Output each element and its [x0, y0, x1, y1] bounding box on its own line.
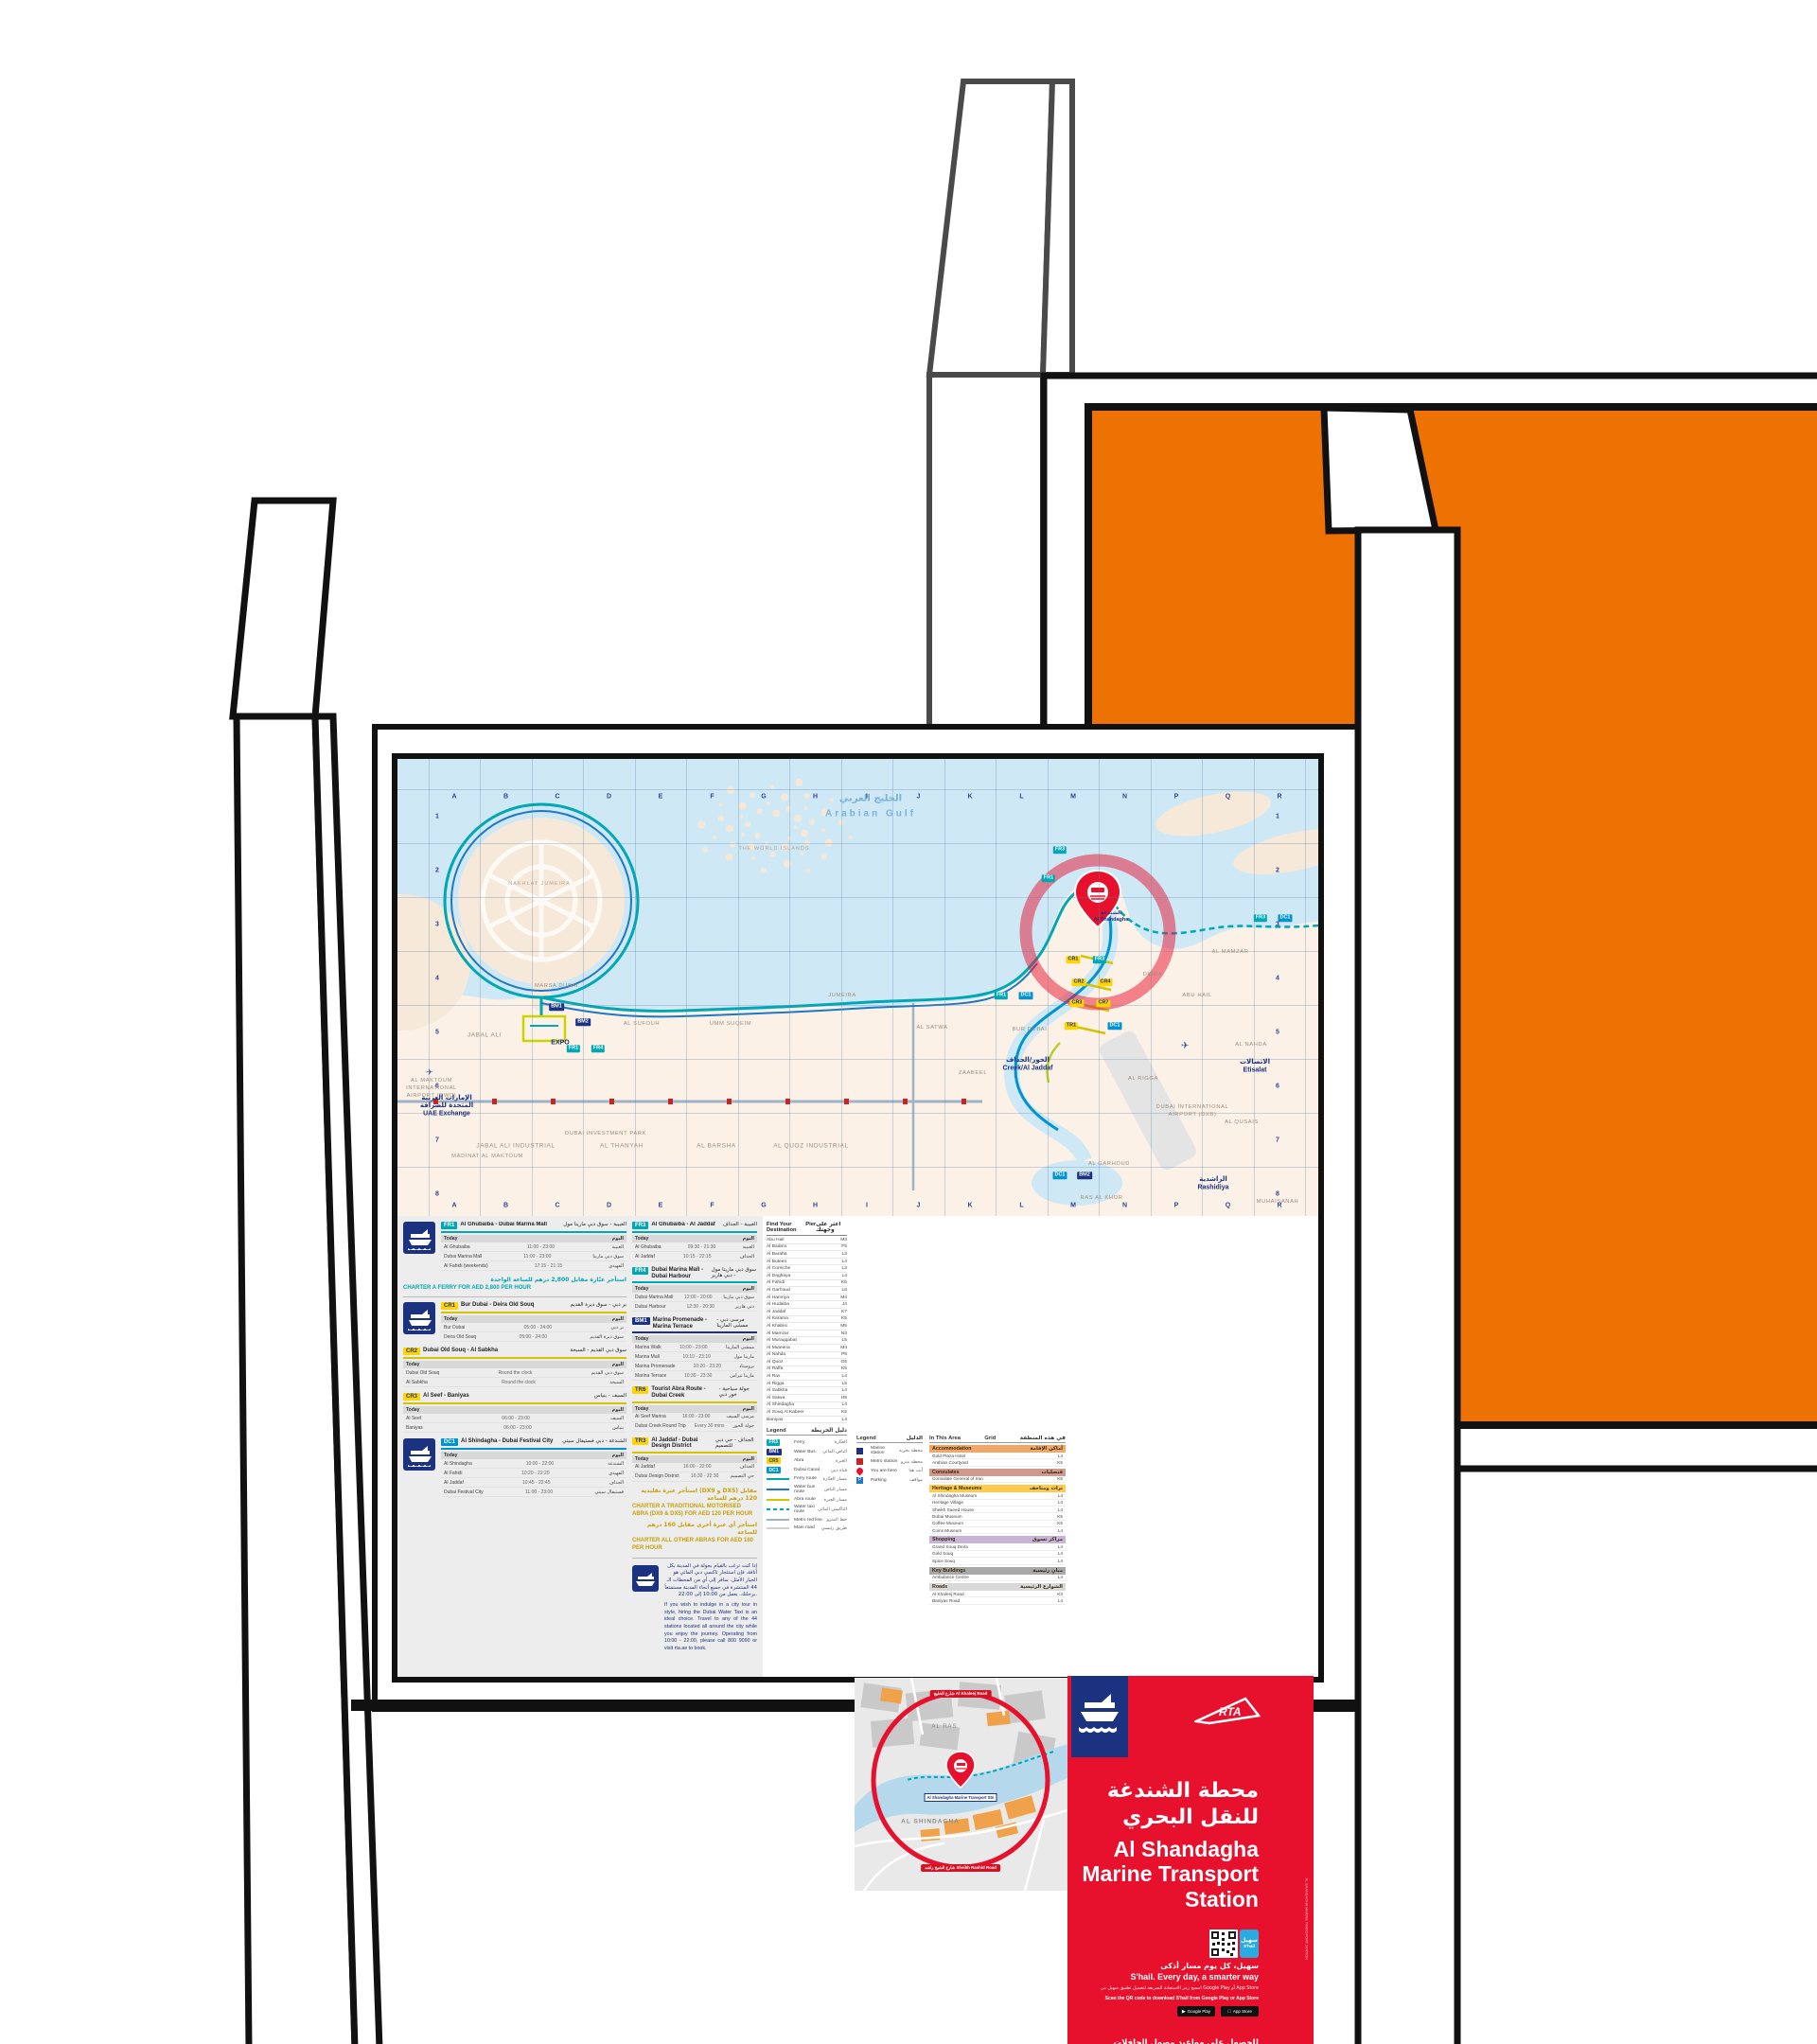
area-row: Coins MuseumL4 [929, 1527, 1066, 1534]
timetable-row: Al Jaddaf16:00 - 22:00الجداف [632, 1463, 757, 1472]
detail-banner-bottom: شارع الشيخ راشد Sheikh Rashid Road [921, 1864, 1000, 1872]
route-title-ar: الغبيبة - الجداف [723, 1222, 757, 1228]
stop-times: 10:20 - 22:20 [521, 1471, 549, 1476]
destination-pier: F5 [841, 1244, 847, 1249]
route-badge: TR6 [632, 1386, 648, 1394]
mini-legend-icon: P [856, 1477, 868, 1484]
legend-label-ar: العبّارة [835, 1439, 847, 1445]
legend-label-en: Abra [794, 1458, 833, 1463]
route-title-en: Al Seef - Baniyas [423, 1393, 469, 1400]
stop-en: Al Fahidi (weekends) [444, 1263, 488, 1269]
stop-ar: سوق دبي القديم [591, 1370, 624, 1376]
area-section: Roadsالشوارع الرئيسيةAl Khaleej RoadK3Ba… [929, 1583, 1066, 1605]
today-ar: اليوم [612, 1236, 624, 1242]
destination-pier: L4 [842, 1402, 847, 1407]
destination-name: Al Nahda [767, 1352, 785, 1357]
destination-row: Al MuraqqabatL5 [767, 1337, 847, 1345]
destination-header: Find Your Destination Pier اعثر على وجهت… [767, 1222, 847, 1236]
timetable-row: Deira Old Souq05:00 - 24:00سوق ديرة القد… [441, 1332, 626, 1342]
stop-en: Al Seef Marina [635, 1414, 666, 1419]
today-bar: Todayاليوم [632, 1405, 757, 1413]
destination-name: Abu Hail [767, 1238, 785, 1242]
destination-row: Al RaffaK5 [767, 1366, 847, 1374]
area-section-name: Consulates [932, 1470, 960, 1475]
area-section: Heritage & Museumsتراث ومتاحفAl Shindagh… [929, 1485, 1066, 1534]
timetable-row: Marina Terrace10:30 - 23:30مارينا تيراس [632, 1371, 757, 1381]
timetable-head: BM1Marina Promenade - Marina Terraceمرسى… [632, 1317, 757, 1330]
timetable-block: DC1Al Shindagha - Dubai Festival Cityالش… [403, 1438, 626, 1497]
area-section-header: Accommodationأماكن الإقامة [929, 1445, 1066, 1453]
timetable-head: CR1Bur Dubai - Deira Old Souqبر دبي - سو… [441, 1302, 626, 1310]
legend-label-en: Dubai Canal [794, 1468, 828, 1472]
timetable-head: FR3Al Ghubaiba - Al Jaddafالغبيبة - الجد… [632, 1222, 757, 1229]
timetable-block: TR6Tourist Abra Route - Dubai Creekجولة … [632, 1386, 757, 1431]
route-title-en: Tourist Abra Route - Dubai Creek [651, 1386, 718, 1399]
route-title-ar: مرسى دبي - ممشى المارينا [716, 1317, 757, 1330]
destination-row: Al HudaibaJ4 [767, 1301, 847, 1309]
route-title-en: Dubai Old Souq - Al Sabkha [423, 1348, 498, 1354]
detail-label-alras: AL RAS [931, 1724, 957, 1730]
route-badge: CR3 [403, 1393, 420, 1401]
route-rule [403, 1357, 626, 1359]
timetable-row: Al SabkhaRound the clockالسبخة [403, 1378, 626, 1387]
route-title-en: Marina Promenade - Marina Terrace [653, 1317, 717, 1330]
route-badge: FR3 [632, 1222, 648, 1229]
destination-name: Al Mamzar [767, 1331, 788, 1336]
stop-en: Dubai Marina Mall [635, 1295, 673, 1300]
area-section-header: Consulatesقنصليات [929, 1469, 1066, 1476]
poster-information-band: FR1Al Ghubaiba - Dubai Marina Mallالغبيب… [397, 1216, 1318, 1677]
timetable-head: TR3Al Jaddaf - Dubai Design Districtالجد… [632, 1437, 757, 1450]
timetable-block: CR1Bur Dubai - Deira Old Souqبر دبي - سو… [403, 1302, 626, 1342]
today-ar: اليوم [612, 1407, 624, 1413]
route-rule [632, 1231, 757, 1233]
mini-legend-icon [856, 1448, 868, 1454]
stop-en: Marina Promenade [635, 1364, 676, 1369]
stop-ar: الفهيدي [609, 1471, 624, 1476]
station-title-arabic: محطة الشندغة للنقل البحري [1107, 1778, 1259, 1830]
legend-label-en: Water taxi route [794, 1505, 815, 1514]
stop-ar: دبي هاربر [735, 1304, 754, 1310]
destination-row: BaniyasL4 [767, 1417, 847, 1424]
mini-legend-en: Metro station [871, 1459, 898, 1464]
mini-legend-title-ar: الدليل [907, 1436, 923, 1441]
svg-text:RTA: RTA [1219, 1705, 1242, 1718]
legend-line [767, 1508, 789, 1510]
today-bar: Todayاليوم [403, 1406, 626, 1414]
route-badge: FR4 [632, 1267, 648, 1275]
today-en: Today [444, 1236, 457, 1242]
area-section-name: Heritage & Museums [932, 1486, 981, 1491]
stop-times: Round the clock [499, 1370, 533, 1376]
today-ar: اليوم [612, 1453, 624, 1458]
area-row: Al Khaleej RoadK3 [929, 1591, 1066, 1597]
destination-name: Al Daghaya [767, 1274, 790, 1278]
stop-times: 16:00 - 22:00 [683, 1464, 711, 1470]
ras-al-khor-lagoon [1032, 1160, 1122, 1206]
legend-swatch: CR5 [767, 1457, 791, 1464]
timetable-head: FR4Dubai Marina Mall - Dubai Harbourسوق … [632, 1267, 757, 1279]
area-row: Sheikh Saeed HouseL4 [929, 1507, 1066, 1513]
area-grid-ref: L4 [1058, 1493, 1063, 1498]
scan-note-ar: امسح رمز الاستجابة السريعة لتحميل تطبيق … [1084, 1986, 1259, 1991]
stop-ar: الجداف [740, 1464, 754, 1470]
area-section-ar: مبانٍ رئيسية [1032, 1568, 1063, 1574]
mini-legend-row: You are hereأنت هنا [856, 1467, 923, 1476]
timetable-row: Dubai Festival City11:00 - 23:00فستيفال … [441, 1488, 626, 1497]
destination-name: Al Raffa [767, 1366, 783, 1371]
destination-row: Al ShindaghaL4 [767, 1402, 847, 1410]
detail-map-graphics [855, 1678, 1067, 1891]
stop-times: 16:00 - 23:00 [682, 1414, 710, 1419]
legend-row: Main roadطريق رئيسي [767, 1524, 847, 1532]
route-title-ar: سوق دبي القديم - السبخة [570, 1348, 626, 1354]
legend-line [767, 1499, 789, 1501]
route-title-en: Al Shindagha - Dubai Festival City [461, 1438, 553, 1445]
stop-times: 17:15 - 21:15 [535, 1263, 562, 1269]
area-place: Al Shindagha Museum [932, 1493, 977, 1498]
destination-name: Baniyas [767, 1418, 783, 1422]
stop-ar: الجداف [740, 1254, 754, 1260]
legend-label-en: Abra route [794, 1497, 821, 1502]
destination-name: Al Satwa [767, 1396, 785, 1401]
destination-pier: L4 [842, 1374, 847, 1379]
charter-note-ar: استأجر عبّارة مقابل 2,800 درهم للساعة ال… [403, 1277, 626, 1284]
destination-pier: M3 [840, 1238, 847, 1242]
shail-qr-code [1209, 1929, 1238, 1958]
mini-legend-ar: مواقف [909, 1477, 923, 1483]
destination-row: Al MamzarN3 [767, 1330, 847, 1338]
area-grid-ref: L4 [1058, 1544, 1063, 1549]
destination-pier: K7 [841, 1310, 847, 1314]
legend-row: Metro red lineخط المترو [767, 1516, 847, 1524]
timetable-block: CR2Dubai Old Souq - Al Sabkhaسوق دبي الق… [403, 1348, 626, 1387]
destination-pier: K5 [841, 1316, 847, 1321]
destination-name: Al Corniche [767, 1266, 790, 1271]
route-title-en: Al Ghubaiba - Dubai Marina Mall [460, 1222, 547, 1228]
today-bar: Todayاليوم [441, 1315, 626, 1323]
stop-ar: بر دبي [610, 1325, 624, 1330]
route-rule [632, 1331, 757, 1333]
destination-row: Al DaghayaL4 [767, 1273, 847, 1280]
destination-row: Al SabkhaL4 [767, 1387, 847, 1395]
signboard-scene: ✈ ✈ [0, 0, 1817, 2044]
destination-pier: L4 [842, 1260, 847, 1264]
destination-row: Al Bada'aF5 [767, 1244, 847, 1252]
destination-name: Al Baraha [767, 1252, 786, 1257]
stop-ar: فستيفال سيتي [594, 1489, 624, 1495]
legend-swatch: FR3 [767, 1439, 791, 1446]
destination-name: Al Hudaiba [767, 1302, 789, 1307]
legend-row: Ferry routeمسار العبّارة [767, 1475, 847, 1484]
route-mode-icon [403, 1222, 435, 1254]
today-bar: Todayاليوم [632, 1455, 757, 1463]
area-grid-ref: K5 [1057, 1476, 1063, 1481]
stop-en: Deira Old Souq [444, 1334, 476, 1340]
legend-swatch [767, 1489, 791, 1490]
route-title-ar: الجداف - حي دبي للتصميم [715, 1437, 757, 1450]
timetable-block: FR1Al Ghubaiba - Dubai Marina Mallالغبيب… [403, 1222, 626, 1271]
destination-pier: N3 [841, 1331, 847, 1336]
today-bar: Todayاليوم [632, 1285, 757, 1293]
destination-row: Al ButeenL4 [767, 1259, 847, 1266]
area-place: Coffee Museum [932, 1521, 963, 1525]
timetable-head: CR3Al Seef - Baniyasالسيف - بنياس [403, 1393, 626, 1401]
stop-en: Dubai Old Souq [406, 1370, 439, 1376]
area-section-header: Key Buildingsمبانٍ رئيسية [929, 1567, 1066, 1575]
route-title-ar: الغبيبة - سوق دبي مارينا مول [563, 1222, 626, 1228]
timetable-head: FR1Al Ghubaiba - Dubai Marina Mallالغبيب… [441, 1222, 626, 1229]
legend-line [767, 1527, 789, 1529]
route-title-en: Bur Dubai - Deira Old Souq [461, 1302, 534, 1309]
route-rule [441, 1312, 626, 1313]
legend-line [767, 1519, 789, 1521]
legend-label-ar: العبرة [836, 1458, 847, 1464]
destination-name: Al Sabkha [767, 1388, 787, 1393]
destination-pier: J4 [842, 1302, 847, 1307]
destination-pier: M4 [840, 1346, 847, 1350]
destination-name: Al Fahidi [767, 1280, 785, 1285]
area-section-ar: الشوارع الرئيسية [1020, 1584, 1063, 1590]
charter-note-en: CHARTER ALL OTHER ABRAS FOR AED 160 PER … [632, 1538, 753, 1551]
area-place: Ambulance Centre [932, 1575, 969, 1579]
stop-ar: السيف [610, 1416, 624, 1421]
stop-en: Al Jaddaf [635, 1254, 655, 1260]
legend-label-en: Main road [794, 1525, 819, 1530]
destination-row: Al RiggaL5 [767, 1381, 847, 1388]
today-en: Today [406, 1407, 419, 1413]
stop-ar: بنياس [612, 1425, 624, 1431]
timetable-row: Dubai Marina Mall11:00 - 23:00سوق دبي ما… [441, 1252, 626, 1261]
destination-pier: M5 [840, 1324, 847, 1329]
stop-ar: الغبيبة [742, 1244, 754, 1250]
today-en: Today [635, 1456, 648, 1462]
destination-header-pier: Pier [805, 1222, 816, 1233]
destination-row: Al MuteenaM4 [767, 1345, 847, 1352]
timetable-row: Dubai Harbour12:30 - 20:30دبي هاربر [632, 1302, 757, 1312]
detail-label-shindagha: AL SHINDAGHA [901, 1819, 960, 1825]
today-ar: اليوم [743, 1236, 754, 1242]
today-en: Today [635, 1406, 648, 1412]
stop-ar: مارينا مول [733, 1354, 754, 1360]
today-ar: اليوم [612, 1362, 624, 1367]
destination-pier: G6 [840, 1360, 847, 1365]
timetable-row: Al Fahidi (weekends)17:15 - 21:15الفهيدي [441, 1261, 626, 1271]
destination-pier: M4 [840, 1295, 847, 1300]
charter-note: استأجر عبّارة مقابل 2,800 درهم للساعة ال… [403, 1277, 626, 1292]
route-title-ar: جولة سياحية - خور دبي [719, 1386, 757, 1399]
stop-times: 06:00 - 23:00 [503, 1425, 531, 1431]
destination-rows: Abu HailM3Al Bada'aF5Al BarahaL3Al Butee… [767, 1237, 847, 1423]
area-row: Consulate General of IranK5 [929, 1476, 1066, 1483]
detail-station-chip: Al Shandagha Marine Transport Stn [925, 1793, 997, 1802]
stop-times: 11:00 - 23:00 [527, 1244, 555, 1250]
area-index-col-grid: Grid [984, 1436, 996, 1441]
legend-swatch [767, 1478, 791, 1480]
legend-chip: CR5 [767, 1457, 781, 1464]
stop-times: 16:30 - 22:30 [691, 1473, 718, 1479]
stop-en: Marina Walk [635, 1345, 662, 1350]
today-bar: Todayاليوم [441, 1235, 626, 1242]
timetable-column-1: FR1Al Ghubaiba - Dubai Marina Mallالغبيب… [403, 1222, 626, 1672]
marine-transport-icon [1071, 1676, 1128, 1757]
water-taxi-icon [632, 1565, 659, 1592]
timetable-row: Al Jaddaf10:45 - 22:45الجداف [441, 1478, 626, 1488]
timetable-block: FR4Dubai Marina Mall - Dubai Harbourسوق … [632, 1267, 757, 1312]
destination-row: Al FahidiK5 [767, 1280, 847, 1288]
legend-label-en: Water Bus [794, 1450, 820, 1454]
area-section-ar: مراكز تسوق [1032, 1537, 1063, 1542]
area-row: Dubai MuseumK5 [929, 1513, 1066, 1520]
station-identity-panel: RTA محطة الشندغة للنقل البحري Al Shandag… [1067, 1676, 1314, 2044]
stop-en: Al Fahidi [444, 1471, 462, 1476]
timetable-block: BM1Marina Promenade - Marina Terraceمرسى… [632, 1317, 757, 1381]
stop-ar: السبخة [609, 1380, 624, 1385]
today-bar: Todayاليوم [441, 1452, 626, 1459]
today-en: Today [444, 1453, 457, 1458]
legend-label-ar: طريق رئيسي [821, 1525, 847, 1531]
timetable-row: Dubai Old SouqRound the clockسوق دبي الق… [403, 1368, 626, 1378]
stop-en: Dubai Festival City [444, 1489, 484, 1495]
legend-title: Legend دليل الخريطة [767, 1428, 847, 1436]
stop-en: Al Shindagha [444, 1461, 472, 1467]
area-section: Key Buildingsمبانٍ رئيسيةAmbulance Centr… [929, 1567, 1066, 1581]
area-section: ConsulatesقنصلياتConsulate General of Ir… [929, 1469, 1066, 1483]
charter-note-en: CHARTER A FERRY FOR AED 2,800 PER HOUR [403, 1285, 531, 1291]
divider [632, 1558, 757, 1559]
legend-line [767, 1478, 789, 1480]
area-place: Coins Museum [932, 1528, 961, 1533]
today-ar: اليوم [743, 1456, 754, 1462]
legend-swatch [767, 1527, 791, 1529]
timetable-row: Marina Promenade10:20 - 23:20بروميناد [632, 1362, 757, 1371]
area-grid-ref: L4 [1058, 1500, 1063, 1505]
route-titles: Dubai Old Souq - Al Sabkhaسوق دبي القديم… [423, 1348, 626, 1354]
today-en: Today [635, 1336, 648, 1342]
stop-times: 05:00 - 24:00 [524, 1325, 552, 1330]
timetable-row: Marina Walk10:00 - 23:00ممشى المارينا [632, 1343, 757, 1352]
area-place: Consulate General of Iran [932, 1476, 983, 1481]
area-place: Baniyas Road [932, 1598, 960, 1603]
route-titles: Al Jaddaf - Dubai Design Districtالجداف … [651, 1437, 757, 1450]
destination-pier: L6 [842, 1288, 847, 1293]
destination-pier: L5 [842, 1382, 847, 1386]
area-section-name: Accommodation [932, 1446, 972, 1452]
mini-legend-title-en: Legend [856, 1436, 876, 1441]
stop-en: Al Jaddaf [444, 1480, 464, 1486]
stop-en: Al Ghubaiba [635, 1244, 662, 1250]
mini-legend-icon [856, 1458, 868, 1465]
timetable-row: Baniyas06:00 - 23:00بنياس [403, 1423, 626, 1433]
timetable-row: Al Seef06:00 - 23:00السيف [403, 1414, 626, 1423]
stop-ar: الشندغة [608, 1461, 624, 1467]
destination-row: Al KhabisiM5 [767, 1323, 847, 1330]
today-ar: اليوم [743, 1336, 754, 1342]
legend-swatch [767, 1499, 791, 1501]
timetable-row: Marina Mall10:10 - 23:10مارينا مول [632, 1352, 757, 1362]
route-badge: CR1 [441, 1302, 458, 1310]
stop-times: 10:15 - 22:15 [683, 1254, 711, 1260]
area-row: Coffee MuseumK5 [929, 1521, 1066, 1527]
today-ar: اليوم [612, 1316, 624, 1322]
timetable-column-2: FR3Al Ghubaiba - Al Jaddafالغبيبة - الجد… [632, 1222, 757, 1672]
area-row: Al Shindagha MuseumL4 [929, 1492, 1066, 1499]
timetable-row: Dubai Creek Round TripEvery 30 minsجولة … [632, 1422, 757, 1432]
area-place: Grand Souq Deira [932, 1544, 968, 1549]
stop-ar: مارينا تيراس [730, 1373, 754, 1379]
destination-row: Al CornicheL3 [767, 1265, 847, 1273]
stop-en: Marina Terrace [635, 1373, 666, 1379]
area-place: Dubai Museum [932, 1514, 962, 1519]
legend-label-ar: الباص المائي [822, 1449, 847, 1454]
destination-name: Al Jaddaf [767, 1310, 785, 1314]
stop-times: 11:00 - 23:00 [525, 1489, 553, 1495]
route-title-ar: سوق دبي مارينا مول - دبي هاربر [712, 1267, 757, 1279]
legend-rows: FR3FerryالعبّارةBM1Water Busالباص المائي… [767, 1437, 847, 1532]
destination-row: Al JaddafK7 [767, 1309, 847, 1316]
stop-ar: سوق ديرة القديم [590, 1334, 624, 1340]
mini-legend-ar: أنت هنا [908, 1468, 923, 1473]
legend-row: Abra routeمسار العبرة [767, 1495, 847, 1504]
stop-en: Marina Mall [635, 1354, 660, 1360]
today-bar: Todayاليوم [632, 1235, 757, 1242]
destination-pier: K5 [841, 1280, 847, 1285]
route-title-ar: السيف - بنياس [594, 1393, 626, 1400]
destination-name: Al Muraqqabat [767, 1338, 797, 1343]
mini-legend-icon [856, 1468, 868, 1474]
mini-legend-ar: محطة بحرية [899, 1448, 923, 1454]
route-badge: TR3 [632, 1437, 648, 1445]
legend-swatch: DC1 [767, 1467, 791, 1473]
destination-name: Al Quoz [767, 1360, 783, 1365]
divider [403, 1296, 626, 1297]
area-section-ar: أماكن الإقامة [1031, 1446, 1063, 1452]
station-title-english: Al Shandagha Marine Transport Station [1082, 1837, 1259, 1912]
area-grid-ref: L4 [1058, 1559, 1063, 1563]
legend-row: Water taxi routeالتاكسي المائي [767, 1504, 847, 1516]
route-titles: Al Ghubaiba - Al Jaddafالغبيبة - الجداف [651, 1222, 757, 1228]
area-place: Spice Souq [932, 1559, 955, 1563]
timetable-row: Al Fahidi10:20 - 22:20الفهيدي [441, 1469, 626, 1478]
stop-times: 10:20 - 23:20 [694, 1364, 721, 1369]
timetable-block: CR3Al Seef - Baniyasالسيف - بنياسTodayال… [403, 1393, 626, 1433]
timetable-row: Al Shindagha10:00 - 22:00الشندغة [441, 1459, 626, 1469]
stop-times: 09:30 - 21:30 [688, 1244, 715, 1250]
area-section: Accommodationأماكن الإقامةGold Plaza Hot… [929, 1445, 1066, 1467]
water-taxi-info: إذا كنت ترغب بالقيام بجولة في المدينة بك… [632, 1563, 757, 1653]
destination-header-ar: اعثر على وجهتك [816, 1222, 847, 1233]
area-grid-ref: L4 [1058, 1551, 1063, 1556]
area-grid-ref: K5 [1057, 1521, 1063, 1525]
area-index-title-en: In This Area [929, 1436, 961, 1441]
timetable-head: TR6Tourist Abra Route - Dubai Creekجولة … [632, 1386, 757, 1399]
google-play-badge: ▶Google Play [1177, 2006, 1215, 2017]
station-map-poster: ✈ ✈ [397, 759, 1318, 1677]
destination-pier: K5 [841, 1366, 847, 1371]
area-grid-ref: L4 [1058, 1454, 1063, 1458]
route-titles: Marina Promenade - Marina Terraceمرسى دب… [653, 1317, 757, 1330]
charter-note-en: CHARTER A TRADITIONAL MOTORISED ABRA (DX… [632, 1504, 752, 1517]
charter-note-ar: استأجر عبرة تقليدية (DX9 و DX5) مقابل 12… [632, 1488, 757, 1503]
timetable-head: DC1Al Shindagha - Dubai Festival Cityالش… [441, 1438, 626, 1446]
charter-note-ar: استأجر أي عبرة أخرى مقابل 160 درهم للساع… [632, 1522, 757, 1537]
destination-row: Al SatwaH5 [767, 1395, 847, 1402]
destination-row: Al GarhoudL6 [767, 1287, 847, 1295]
area-section: Shoppingمراكز تسوقGrand Souq DeiraL4Gold… [929, 1536, 1066, 1564]
destination-pier: L4 [842, 1388, 847, 1393]
stop-ar: الجداف [609, 1480, 624, 1486]
bus-timings-ar: للحصول على مواعيد وصول الحافلات [1114, 2038, 1259, 2044]
